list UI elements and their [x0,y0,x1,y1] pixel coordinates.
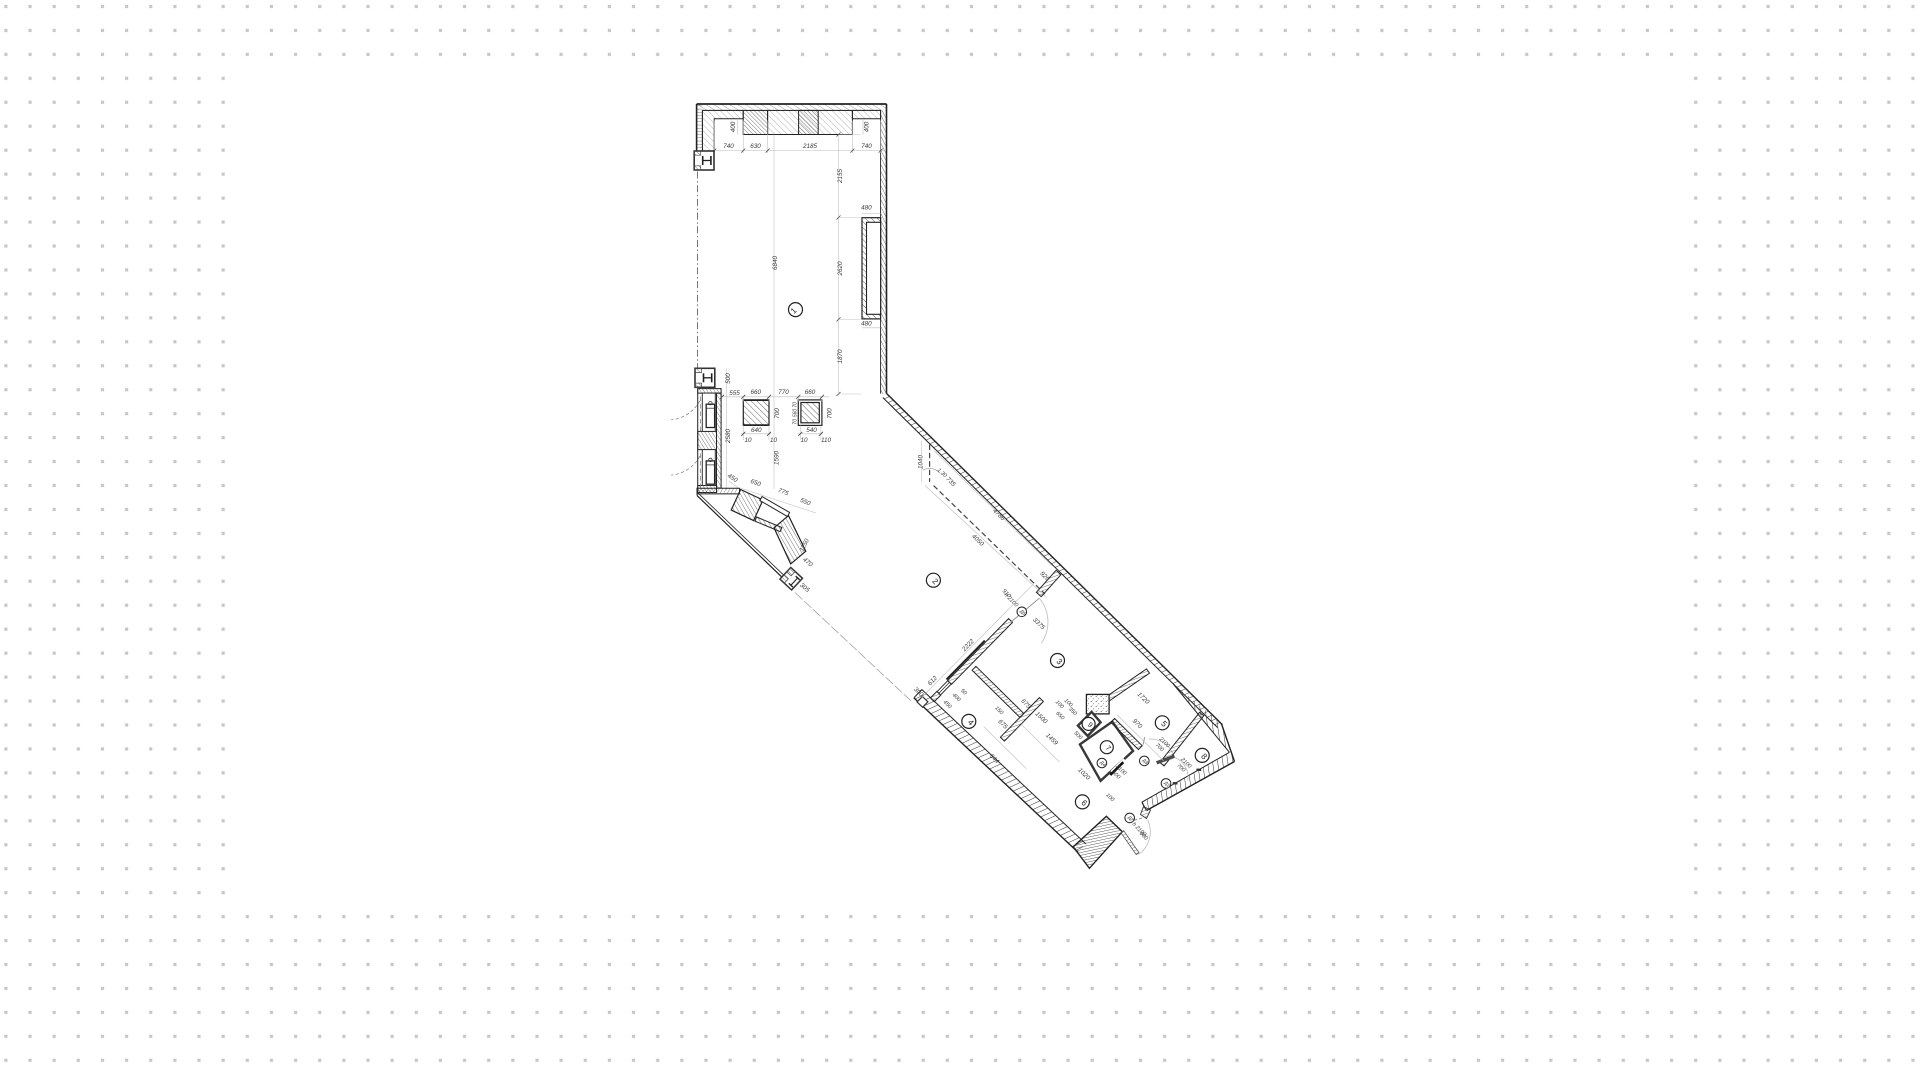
svg-text:2155: 2155 [837,169,844,185]
svg-text:70: 70 [793,402,799,408]
svg-text:630: 630 [750,143,761,150]
svg-text:2580: 2580 [725,429,732,445]
svg-text:2620: 2620 [837,261,844,277]
svg-text:640: 640 [751,427,762,434]
svg-text:700: 700 [827,408,834,419]
svg-text:400: 400 [863,121,870,132]
svg-text:2185: 2185 [802,143,818,150]
svg-text:480: 480 [861,205,872,212]
svg-text:480: 480 [861,320,872,327]
svg-text:1590: 1590 [773,451,780,466]
svg-text:10: 10 [770,437,778,444]
svg-text:740: 740 [861,143,872,150]
svg-text:500: 500 [725,373,732,384]
svg-text:660: 660 [805,389,816,396]
svg-text:400: 400 [730,121,737,132]
svg-text:555: 555 [729,390,740,397]
svg-text:6840: 6840 [772,256,779,271]
svg-text:10: 10 [800,437,808,444]
svg-text:770: 770 [778,389,789,396]
svg-text:540: 540 [806,427,817,434]
svg-text:110: 110 [821,437,832,444]
svg-text:10: 10 [744,437,752,444]
svg-text:560: 560 [793,409,799,418]
svg-text:70: 70 [793,419,799,425]
svg-text:660: 660 [751,389,762,396]
svg-text:1870: 1870 [837,349,844,364]
svg-text:700: 700 [774,408,781,419]
svg-text:1040: 1040 [918,455,925,470]
svg-text:740: 740 [723,143,734,150]
